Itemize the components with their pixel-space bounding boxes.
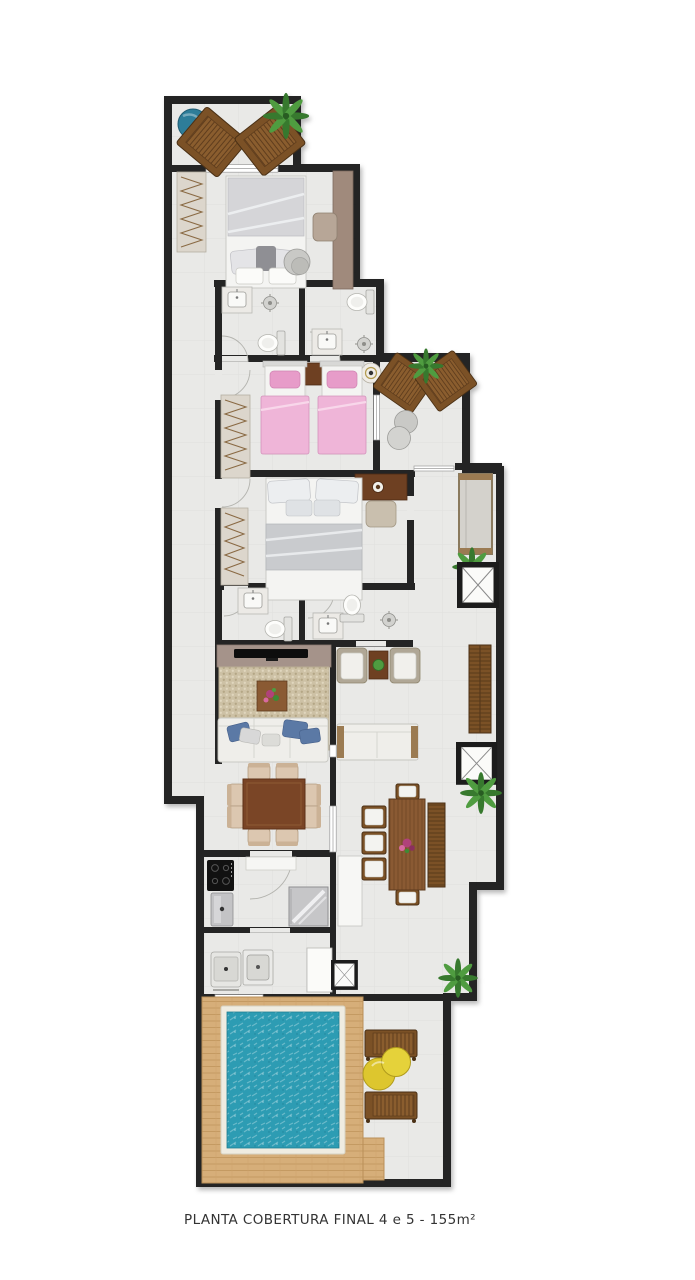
sink bbox=[238, 588, 268, 614]
palm-plant bbox=[438, 958, 478, 998]
counter bbox=[246, 857, 296, 870]
tv bbox=[234, 649, 308, 658]
wardrobe bbox=[221, 508, 248, 585]
wardrobe bbox=[177, 172, 206, 252]
sink bbox=[313, 613, 343, 639]
outdoor-chair bbox=[396, 784, 419, 799]
bench bbox=[459, 474, 492, 554]
outdoor-chair bbox=[362, 832, 386, 854]
side-table bbox=[369, 651, 388, 679]
armchair bbox=[337, 648, 367, 683]
floor-plan-page: PLANTA COBERTURA FINAL 4 e 5 - 155m² bbox=[0, 0, 695, 1280]
dining-chair bbox=[276, 763, 298, 781]
dining-chair bbox=[276, 828, 298, 846]
elevator-shaft bbox=[456, 742, 497, 785]
sofa bbox=[218, 718, 328, 762]
sink bbox=[222, 287, 252, 313]
armchair bbox=[390, 648, 420, 683]
pool bbox=[227, 1012, 339, 1148]
washer bbox=[211, 952, 241, 990]
single-bed-pink bbox=[318, 361, 366, 454]
cooktop bbox=[207, 860, 234, 891]
single-bed-pink bbox=[261, 361, 309, 454]
duct-shaft bbox=[331, 960, 358, 990]
stair-shaft bbox=[338, 856, 362, 926]
floor-plan bbox=[0, 0, 695, 1280]
wardrobe bbox=[221, 395, 250, 478]
outdoor-bench bbox=[428, 803, 445, 887]
dining-chair bbox=[303, 806, 321, 828]
dining-chair bbox=[227, 784, 245, 806]
elevator-shaft bbox=[457, 562, 499, 608]
outdoor-chair bbox=[362, 858, 386, 880]
outdoor-chair bbox=[396, 890, 419, 905]
yellow-pouf bbox=[382, 1048, 411, 1077]
wood-deck-strip bbox=[363, 1138, 384, 1180]
refrigerator bbox=[289, 887, 328, 926]
outdoor-chair bbox=[362, 806, 386, 828]
palm-plant bbox=[408, 348, 443, 383]
pool-lounger bbox=[365, 1092, 417, 1123]
palm-plant bbox=[263, 93, 309, 139]
dining-chair bbox=[248, 763, 270, 781]
cabinet bbox=[307, 948, 332, 992]
dining-table bbox=[243, 779, 305, 829]
hall-sofa bbox=[337, 724, 418, 760]
tall-oven bbox=[211, 893, 233, 926]
sink bbox=[312, 329, 342, 355]
coffee-table bbox=[257, 681, 287, 711]
dining-chair bbox=[303, 784, 321, 806]
dining-chair bbox=[227, 806, 245, 828]
dining-chair bbox=[248, 828, 270, 846]
palm-plant bbox=[460, 772, 502, 814]
plan-caption: PLANTA COBERTURA FINAL 4 e 5 - 155m² bbox=[0, 1212, 660, 1228]
gray-pouf bbox=[388, 427, 411, 450]
living-room bbox=[217, 645, 331, 762]
double-bed bbox=[266, 478, 362, 600]
laundry-tub bbox=[243, 950, 273, 985]
desk-chair bbox=[366, 501, 396, 527]
